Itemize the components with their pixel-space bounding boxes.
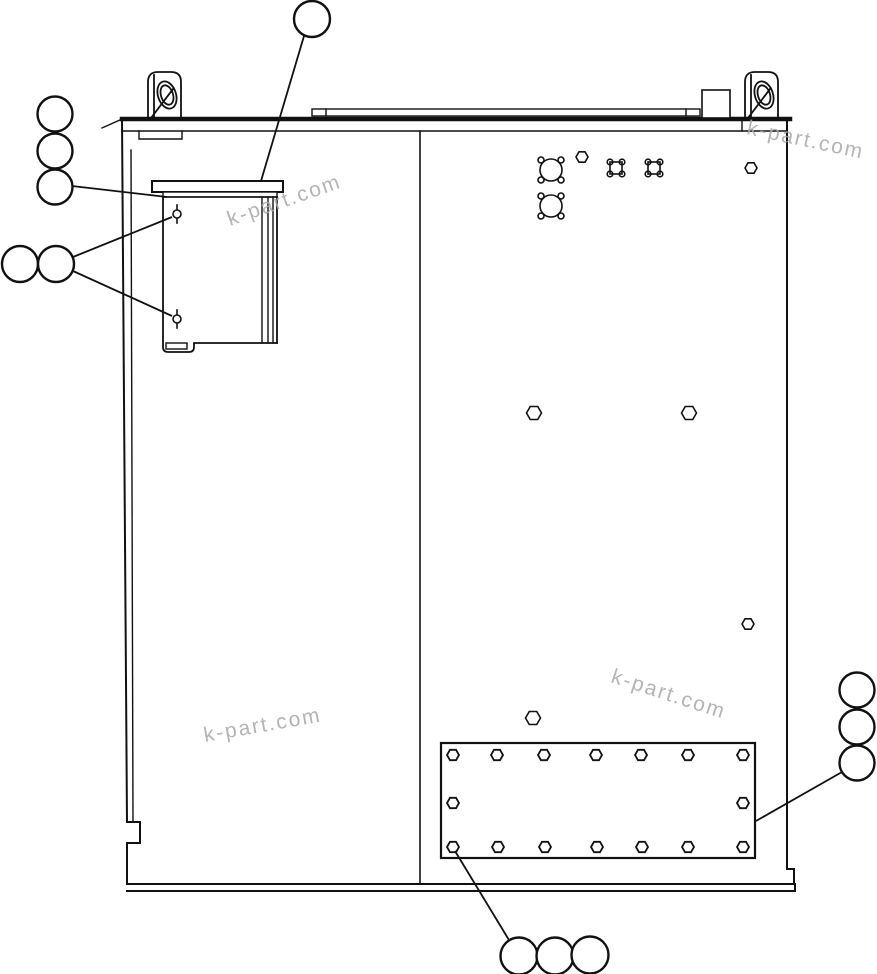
hex-bolt (527, 407, 542, 420)
watermark-text: k-part.com (224, 170, 344, 231)
watermark-text: k-part.com (745, 116, 866, 163)
hex-bolt (742, 619, 754, 629)
callout-balloon (840, 710, 875, 745)
callout-balloon (2, 246, 38, 282)
left-lug-pedestal (139, 131, 182, 139)
bracket-screw-upper (173, 205, 181, 223)
lifting-lug-right-shape (745, 72, 778, 118)
parts-diagram: k-part.com k-part.com k-part.com k-part.… (0, 0, 877, 974)
panel-fasteners (526, 152, 758, 725)
bracket-screw-lower (173, 310, 181, 328)
leader-bottom-row (455, 851, 509, 940)
callout-balloon (501, 938, 538, 974)
diagram-canvas: k-part.com k-part.com k-part.com k-part.… (0, 0, 877, 974)
callout-balloon (294, 1, 330, 37)
watermark-text: k-part.com (202, 704, 323, 747)
hex-bolt (682, 407, 697, 420)
top-right-block (702, 90, 730, 118)
round-mount-pattern (538, 157, 564, 183)
callout-balloon (840, 746, 875, 781)
top-rail (312, 109, 700, 116)
callout-balloon (38, 170, 73, 205)
bracket-foot-slot (166, 343, 187, 349)
left-edge-inner (131, 150, 133, 822)
square-mount-pattern (645, 159, 663, 177)
leader-top-balloon (261, 36, 304, 181)
callout-balloon (840, 673, 875, 708)
watermark-text: k-part.com (608, 665, 728, 724)
top-left-chamfer (102, 119, 122, 128)
square-mount-pattern (607, 159, 625, 177)
lifting-lug-left-shape (148, 72, 181, 118)
callout-balloon (537, 938, 574, 974)
callout-balloon (38, 97, 73, 132)
right-edge (787, 120, 794, 884)
watermarks: k-part.com k-part.com k-part.com k-part.… (202, 116, 866, 747)
cover-plate (441, 743, 755, 858)
bracket-top-flange (152, 181, 283, 192)
hex-bolt (526, 712, 541, 725)
hex-bolt (576, 152, 588, 162)
callout-balloon (572, 937, 609, 974)
callout-balloon (38, 134, 73, 169)
leader-right-stack (756, 772, 842, 821)
callout-balloon (38, 246, 74, 282)
hex-bolt (745, 163, 757, 173)
round-mount-pattern (538, 193, 564, 219)
